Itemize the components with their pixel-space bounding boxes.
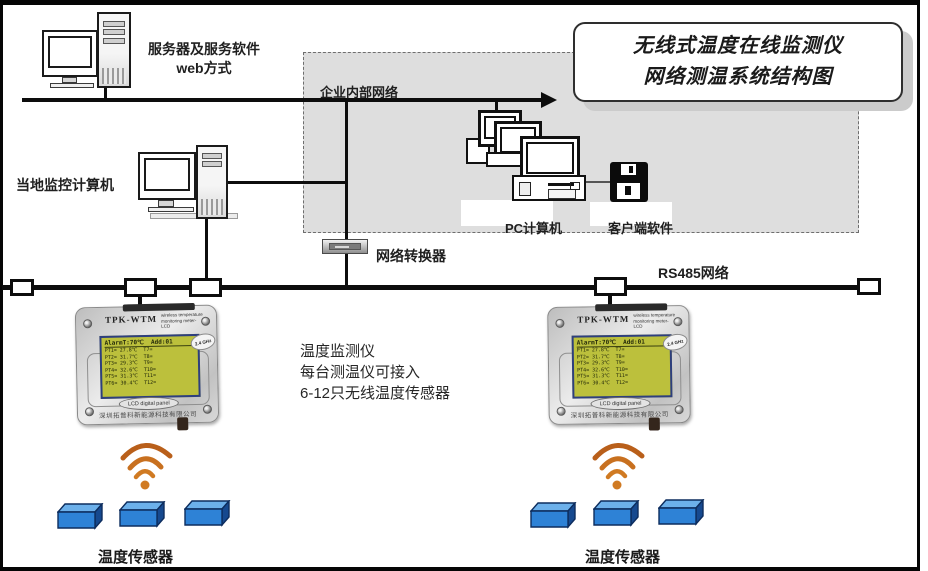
title-line-1: 无线式温度在线监测仪: [633, 31, 843, 62]
title-box: 无线式温度在线监测仪 网络测温系统结构图: [573, 22, 903, 102]
rs485-terminator-right: [857, 278, 881, 295]
local-pc-monitor-icon: [138, 152, 196, 200]
diagram-canvas: 无线式温度在线监测仪 网络测温系统结构图 企业内部网络 服务器及服务软件 web…: [0, 0, 928, 571]
intranet-arrow-icon: [541, 92, 557, 108]
temp-sensor-icon: [119, 501, 166, 528]
title-line-2: 网络测温系统结构图: [644, 62, 833, 93]
rs485-node-b: [189, 278, 222, 297]
rs485-node-c: [594, 277, 627, 296]
rs485-terminator-left: [10, 279, 34, 296]
server-monitor-base: [50, 83, 94, 88]
floppy-disk-icon: [610, 162, 648, 202]
temp-sensor-icon: [184, 500, 231, 527]
device-subtitle-label: wireless temperature monitoring meter-LC…: [161, 312, 205, 329]
temp-sensor-icon: [658, 499, 705, 526]
wifi-signal-icon-left: [110, 438, 180, 492]
device-terminal-strip: [595, 303, 667, 311]
device-terminal-strip: [123, 303, 195, 312]
temp-sensor-icon: [593, 500, 640, 527]
local-pc-monitor-base: [148, 207, 194, 212]
note-line-2: 每台测温仪可接入: [300, 362, 450, 383]
monitor-note: 温度监测仪 每台测温仪可接入 6-12只无线温度传感器: [300, 341, 450, 404]
sensor-label-right: 温度传感器: [585, 546, 660, 567]
wifi-signal-icon-right: [582, 438, 652, 492]
server-drop-line: [104, 88, 107, 99]
network-converter-icon: [322, 239, 368, 254]
temp-monitor-device-right: TPK-WTM wireless temperature monitoring …: [547, 305, 691, 425]
pc-cluster-desktop-icon: [512, 175, 586, 201]
device-company-label: 深圳拓普科新能源科技有限公司: [561, 408, 679, 420]
device-lcd-screen: AlarmT:70℃ Add:01 PT1= 27.8℃ T7= PT2= 31…: [572, 334, 673, 398]
note-line-1: 温度监测仪: [300, 341, 450, 362]
device-antenna-stub: [649, 417, 660, 430]
intranet-bus-line: [22, 98, 544, 102]
device-model-label: TPK-WTM: [577, 314, 629, 325]
converter-label: 网络转换器: [376, 246, 446, 266]
local-pc-drop-line: [205, 219, 208, 279]
device-model-label: TPK-WTM: [105, 314, 157, 325]
server-label-line-2: web方式: [128, 59, 280, 78]
server-label: 服务器及服务软件 web方式: [128, 40, 280, 78]
temp-monitor-device-left: TPK-WTM wireless temperature monitoring …: [75, 305, 219, 426]
local-pc-label: 当地监控计算机: [16, 175, 114, 195]
rs485-label: RS485网络: [658, 263, 729, 283]
lcd-row: PT6= 30.4℃ T12=: [105, 379, 195, 387]
local-pc-to-riser-line: [228, 181, 347, 184]
device-antenna-stub: [177, 417, 188, 430]
server-monitor-icon: [42, 30, 98, 77]
intranet-riser-line: [345, 102, 348, 287]
temp-sensor-icon: [530, 502, 577, 529]
temp-sensor-icon: [57, 503, 104, 530]
intranet-label: 企业内部网络: [320, 82, 398, 101]
sensor-label-left: 温度传感器: [98, 546, 173, 567]
note-line-3: 6-12只无线温度传感器: [300, 383, 450, 404]
local-pc-monitor-stand: [158, 200, 174, 207]
server-label-line-1: 服务器及服务软件: [128, 40, 280, 59]
client-software-label: 客户端软件: [608, 218, 673, 237]
local-pc-tower-icon: [196, 145, 228, 219]
floppy-link-line: [586, 181, 610, 183]
device-subtitle-label: wireless temperature monitoring meter-LC…: [633, 312, 677, 329]
rs485-node-a: [124, 278, 157, 297]
device-lcd-screen: AlarmT:70℃ Add:01 PT1= 27.8℃ T7= PT2= 31…: [99, 334, 200, 399]
lcd-row: PT6= 30.4℃ T12=: [577, 379, 667, 387]
server-tower-icon: [97, 12, 131, 88]
pc-label: PC计算机: [505, 218, 562, 237]
